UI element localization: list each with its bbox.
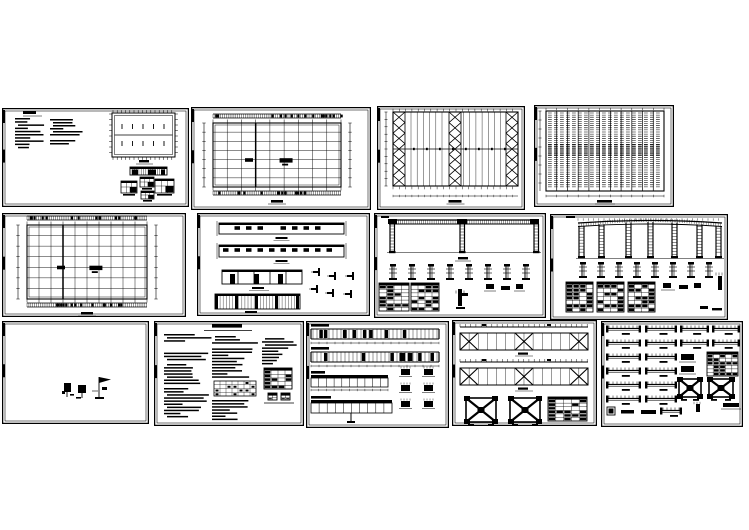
- sheet-plan-with-notes: [2, 108, 189, 207]
- sheet-canvas-c: [377, 106, 525, 210]
- sheet-canvas-e: [2, 213, 186, 317]
- sheet-canvas-f: [197, 213, 370, 316]
- sheet-gable-framing-elevation: [550, 214, 728, 320]
- sheet-canvas-d: [534, 105, 674, 207]
- sheet-foundation-grid-plan: [2, 213, 186, 317]
- sheet-canvas-l: [452, 320, 597, 426]
- cad-sheet-collage: [0, 0, 749, 530]
- sheet-canvas-g: [374, 213, 546, 318]
- sheet-canvas-b: [191, 107, 371, 210]
- sheet-canvas-j: [154, 321, 304, 426]
- sheet-roof-bracing-details: [452, 320, 597, 426]
- sheet-sparse-details: [2, 321, 149, 424]
- sheet-canvas-i: [2, 321, 149, 424]
- sheet-canvas-m: [601, 321, 743, 427]
- sheet-girt-elevations: [306, 321, 449, 428]
- sheet-canvas-h: [550, 214, 728, 320]
- sheet-purlin-layout-plan: [534, 105, 674, 207]
- sheet-wall-elevations: [197, 213, 370, 316]
- sheet-connection-details: [601, 321, 743, 427]
- sheet-portal-frame-elevation: [374, 213, 546, 318]
- sheet-canvas-k: [306, 321, 449, 428]
- sheet-general-notes: [154, 321, 304, 426]
- sheet-roof-bracing-plan: [377, 106, 525, 210]
- sheet-column-grid-plan: [191, 107, 371, 210]
- sheet-canvas-a: [2, 108, 189, 207]
